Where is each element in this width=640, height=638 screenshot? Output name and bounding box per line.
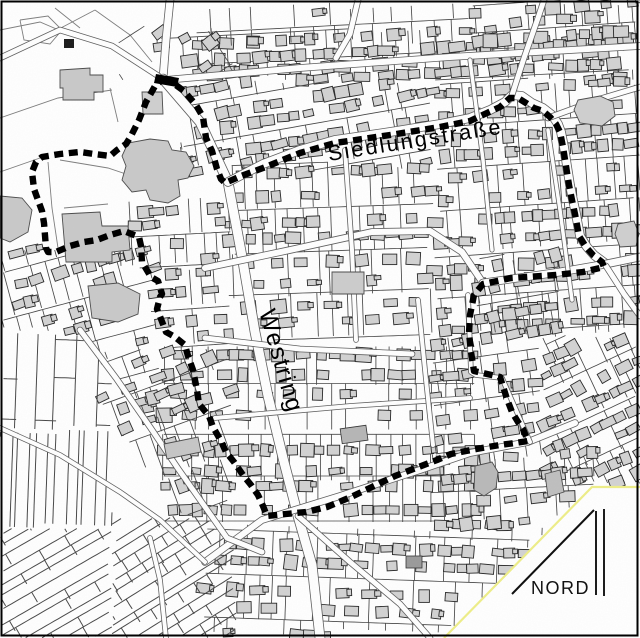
svg-text:NORD: NORD [531,578,590,598]
